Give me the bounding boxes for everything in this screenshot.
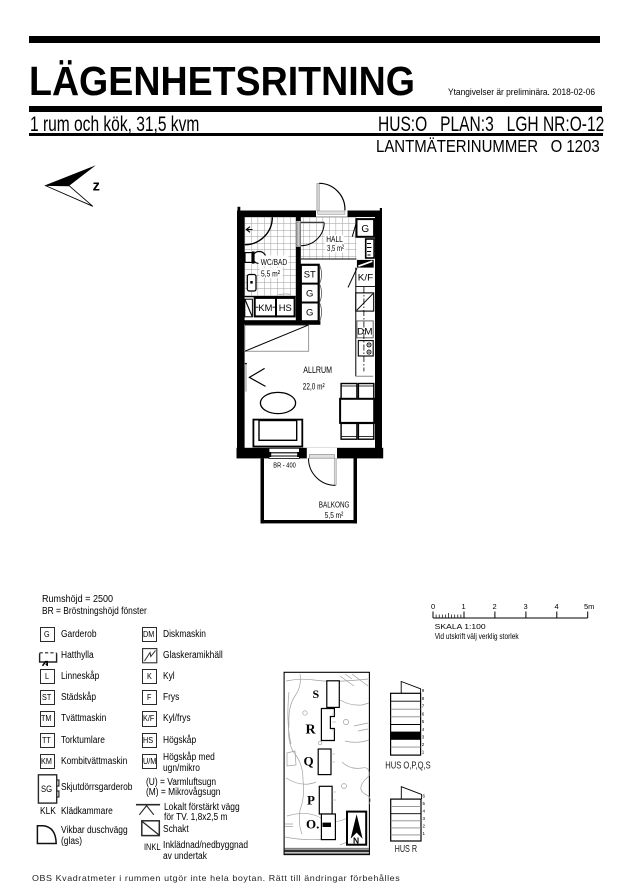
svg-text:BR - 400: BR - 400 bbox=[273, 463, 296, 470]
svg-text:3: 3 bbox=[423, 816, 426, 821]
svg-text:G: G bbox=[306, 307, 313, 318]
svg-text:ALLRUM: ALLRUM bbox=[303, 365, 332, 376]
svg-text:R: R bbox=[306, 723, 317, 738]
svg-text:ST: ST bbox=[304, 270, 316, 281]
svg-text:8: 8 bbox=[422, 696, 425, 701]
svg-text:HUS O,P,Q,S: HUS O,P,Q,S bbox=[385, 759, 430, 771]
svg-text:4: 4 bbox=[422, 727, 425, 732]
svg-text:BALKONG: BALKONG bbox=[319, 499, 350, 509]
svg-text:S: S bbox=[313, 687, 320, 701]
svg-text:HS: HS bbox=[279, 303, 292, 314]
svg-text:K/F: K/F bbox=[358, 273, 374, 283]
svg-text:DM: DM bbox=[357, 327, 373, 337]
svg-text:5m: 5m bbox=[584, 602, 594, 611]
svg-text:5,5 m²: 5,5 m² bbox=[261, 269, 280, 279]
svg-text:4: 4 bbox=[423, 809, 426, 814]
svg-text:5,5 m²: 5,5 m² bbox=[325, 510, 344, 520]
svg-text:7: 7 bbox=[422, 704, 425, 709]
svg-text:4: 4 bbox=[555, 602, 559, 611]
svg-text:O.: O. bbox=[306, 817, 319, 832]
svg-text:3,5 m²: 3,5 m² bbox=[327, 243, 344, 253]
svg-text:1: 1 bbox=[423, 831, 426, 836]
svg-text:3: 3 bbox=[524, 602, 528, 611]
svg-text:WC/BAD: WC/BAD bbox=[261, 257, 287, 267]
svg-text:Q: Q bbox=[304, 754, 314, 769]
svg-text:z: z bbox=[93, 178, 100, 194]
svg-text:SKALA 1:100: SKALA 1:100 bbox=[435, 622, 486, 631]
svg-text:22,0 m²: 22,0 m² bbox=[303, 382, 325, 393]
svg-text:2: 2 bbox=[422, 742, 425, 747]
svg-text:KM: KM bbox=[258, 303, 272, 314]
svg-text:G: G bbox=[361, 224, 369, 235]
svg-text:2: 2 bbox=[493, 602, 497, 611]
svg-text:6: 6 bbox=[423, 794, 426, 799]
svg-text:G: G bbox=[306, 289, 313, 300]
svg-text:HUS R: HUS R bbox=[395, 843, 418, 855]
svg-text:6: 6 bbox=[422, 712, 425, 717]
svg-text:2: 2 bbox=[423, 824, 426, 829]
svg-text:1: 1 bbox=[422, 750, 425, 755]
svg-text:Vid utskrift välj verklig stor: Vid utskrift välj verklig storlek bbox=[435, 632, 520, 641]
svg-text:0: 0 bbox=[431, 602, 435, 611]
svg-text:5: 5 bbox=[422, 719, 425, 724]
svg-text:N: N bbox=[353, 836, 359, 846]
svg-text:9: 9 bbox=[422, 688, 425, 693]
svg-text:3: 3 bbox=[422, 735, 425, 740]
svg-text:5: 5 bbox=[423, 801, 426, 806]
svg-text:1: 1 bbox=[462, 602, 466, 611]
svg-text:P: P bbox=[307, 793, 315, 808]
